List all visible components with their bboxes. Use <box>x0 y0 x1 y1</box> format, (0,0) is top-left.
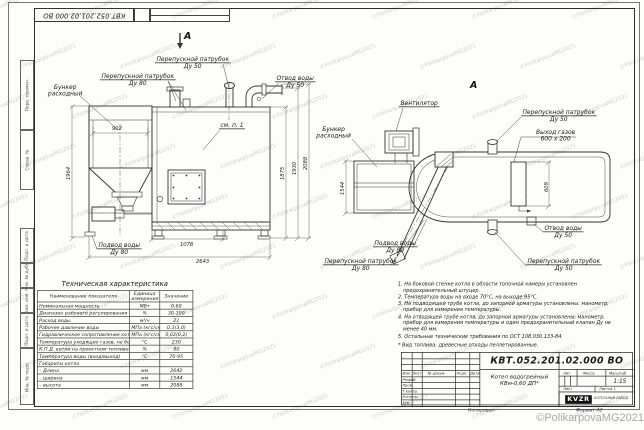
tb-grid-line <box>402 382 480 383</box>
table-row: Номинальная мощностьМВт0,60 <box>37 302 193 309</box>
label-water-outlet-front: Отвод воды Ду 50 <box>275 75 315 89</box>
tech-th-unit: Единица измерения <box>130 290 160 302</box>
tb-col-izm: Изм. <box>402 371 410 375</box>
tb-sheets-label: Листов 1 <box>599 387 616 391</box>
label-bypass-50-plan-top: Перепускной патрубок Ду 50 <box>521 109 597 123</box>
dim-mid-height: 1930 <box>291 162 297 175</box>
tech-th-name: Наименование показателя <box>37 290 129 302</box>
title-block: КВТ.052.201.02.000 ВО Изм. Лист № докум.… <box>401 352 633 405</box>
label-bunker-front: Бункер расходный <box>40 84 90 97</box>
tb-col-list: Лист <box>413 371 422 375</box>
tech-characteristics: Техническая характеристика Наименование … <box>37 280 193 389</box>
title-block-doc-number: КВТ.052.201.02.000 ВО <box>479 353 633 370</box>
label-bypass-50-plan-bottom: Перепускной патрубок Ду 50 <box>526 258 602 272</box>
tb-grid-line <box>402 400 480 401</box>
kopiroval-label: Копировал <box>468 407 495 413</box>
table-row: Габариты котла <box>37 360 193 367</box>
label-fan: Вентилятор <box>399 100 439 107</box>
tb-col-data: Дата <box>470 371 479 375</box>
tb-grid-line <box>402 364 480 365</box>
dim-bunker-width: 902 <box>112 125 122 131</box>
dim-total-length: 2643 <box>196 258 209 264</box>
tech-table: Наименование показателя Единица измерени… <box>37 290 193 389</box>
tb-sig-prov: Пров. <box>402 383 412 387</box>
label-bunker-plan: Бункер расходный <box>312 126 355 139</box>
table-row: Диапазон рабочего регулирования%30-100 <box>37 309 193 316</box>
label-water-inlet-plan: Подвод воды Ду 80 <box>373 240 417 254</box>
logo-kvzr: KVZR <box>565 395 592 404</box>
logo-subtext: КОТЕЛЬНЫЙ ЗАВОД <box>594 397 628 401</box>
tb-grid-line <box>402 358 480 359</box>
label-bypass-80-front: Перепускной патрубок Ду 80 <box>100 73 176 87</box>
view-marker-plan: А <box>470 80 477 91</box>
dim-total-height: 2088 <box>302 157 308 170</box>
note-item: 1. На боковой стенке котла в области топ… <box>398 281 623 294</box>
label-gas-outlet: Выход газов 600 x 200 <box>536 129 575 142</box>
title-block-product-name: Котел водогрейный КВм-0,60 ДП* <box>479 370 558 406</box>
tb-grid-line <box>469 353 470 406</box>
note-item: 4. На отводящей трубе котла, до запорной… <box>398 314 623 333</box>
tb-sig-razrab: Разраб. <box>402 378 416 382</box>
tb-sig-nkontr: Н.контр. <box>402 395 418 399</box>
label-water-inlet-front: Подвод воды Ду 80 <box>97 242 141 256</box>
dim-conveyor-length: 1078 <box>180 241 193 247</box>
label-bypass-80-plan: Перепускной патрубок Ду 80 <box>323 258 399 272</box>
tb-grid-line <box>570 376 571 386</box>
label-water-outlet-plan: Отвод воды Ду 50 <box>543 225 583 239</box>
tb-grid-line <box>605 370 606 386</box>
dim-boiler-height: 1875 <box>279 167 285 180</box>
dim-bunker-height: 1964 <box>65 167 71 180</box>
tb-scale-label: Масштаб <box>609 371 626 375</box>
dim-gas-outlet-height: 609 <box>543 182 549 192</box>
table-row: Гидравлическое сопротивление котлаМПа (к… <box>37 331 193 338</box>
tech-table-title: Техническая характеристика <box>37 280 193 288</box>
tb-grid-line <box>455 353 456 406</box>
section-marker-front: А <box>184 31 191 42</box>
table-row: Расход водым³/ч21 <box>37 316 193 323</box>
table-row: Рабочее давление водыМПа (кгс/см²)0,3(3,… <box>37 324 193 331</box>
note-item: 3. На подводящей трубе котла, до запорно… <box>398 301 623 314</box>
tb-sig-tkontr: Т.контр. <box>402 389 418 393</box>
tech-th-value: Значение <box>160 290 193 302</box>
table-row: Температура воды (вход/выход)°С70-95 <box>37 352 193 359</box>
tb-lit-label: Лит. <box>563 371 571 375</box>
table-row: К.П.Д. котла на проектном топливе%80 <box>37 345 193 352</box>
tb-col-podp: Подп. <box>456 371 467 375</box>
table-row: Температура уходящих газов, не более°С23… <box>37 338 193 345</box>
tb-col-dokum: № докум. <box>428 371 446 375</box>
tb-mass-label: Масса <box>583 371 594 375</box>
tb-grid-line <box>577 370 578 386</box>
note-item: 5. Остальные технические требования по О… <box>398 333 623 339</box>
table-row: – высотамм2088 <box>37 381 193 388</box>
notes-block: 1. На боковой стенке котла в области топ… <box>398 281 623 349</box>
drawing-sheet: ©PolikarpovaMG2021©PolikarpovaMG2021©Pol… <box>0 0 644 430</box>
tb-grid-line <box>564 376 565 386</box>
dim-bunker-depth: 1544 <box>339 182 345 195</box>
tb-sig-utv: Утв. <box>402 401 410 405</box>
tb-sheet-label: Лист <box>563 387 572 391</box>
tech-table-header-row: Наименование показателя Единица измерени… <box>37 290 193 302</box>
table-row: – Длинамм2642 <box>37 367 193 374</box>
label-bypass-50-front: Перепускной патрубок Ду 50 <box>155 56 231 70</box>
company-logo: KVZR КОТЕЛЬНЫЙ ЗАВОД <box>559 392 634 406</box>
note-fuel-type: * Вид топлива: древесные отходы пеллетир… <box>398 343 623 349</box>
tb-grid-line <box>422 353 423 406</box>
label-see-note: см. п. 1 <box>219 122 245 129</box>
tb-scale-value: 1:15 <box>613 378 626 384</box>
table-row: – ширинамм1544 <box>37 374 193 381</box>
copyright-watermark: ©PolikarpovaMG2021 <box>498 412 644 424</box>
note-item: 2. Температура воды на входе 70°С, на вы… <box>398 294 623 300</box>
